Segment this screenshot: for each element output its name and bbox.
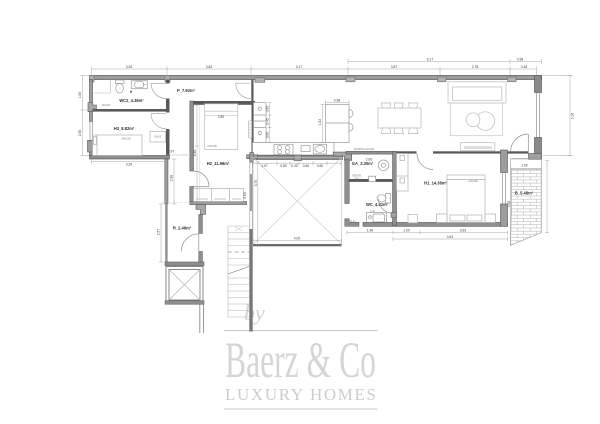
svg-text:50x50: 50x50 <box>154 136 161 139</box>
svg-text:0.48: 0.48 <box>521 65 528 69</box>
svg-text:1.50: 1.50 <box>78 92 82 99</box>
svg-text:H3_8.82m²: H3_8.82m² <box>114 126 135 131</box>
svg-text:0.60: 0.60 <box>303 164 310 168</box>
svg-text:0.98: 0.98 <box>517 58 524 62</box>
svg-text:1.62: 1.62 <box>318 119 322 126</box>
svg-text:H1_14.36m²: H1_14.36m² <box>424 181 447 186</box>
svg-text:3.26: 3.26 <box>126 65 133 69</box>
svg-text:4.50: 4.50 <box>193 150 197 157</box>
svg-text:0.90: 0.90 <box>354 178 359 181</box>
svg-text:H2_11.96m²: H2_11.96m² <box>207 161 230 166</box>
svg-text:WC2_4.36m²: WC2_4.36m² <box>119 98 144 103</box>
svg-text:2.57: 2.57 <box>157 229 161 236</box>
svg-text:2.80: 2.80 <box>218 115 225 119</box>
svg-text:4.17: 4.17 <box>296 65 303 69</box>
svg-text:0.40: 0.40 <box>291 164 298 168</box>
svg-text:3.16: 3.16 <box>571 113 575 120</box>
svg-text:0.60: 0.60 <box>317 164 324 168</box>
svg-text:Baerz & Co: Baerz & Co <box>225 333 376 389</box>
svg-text:140x190: 140x190 <box>121 137 131 140</box>
svg-text:R_2.46m²: R_2.46m² <box>173 226 192 231</box>
svg-text:1.50: 1.50 <box>521 164 528 168</box>
svg-text:1.07: 1.07 <box>261 164 268 168</box>
svg-text:2.78: 2.78 <box>472 65 479 69</box>
svg-text:0.98: 0.98 <box>334 98 341 102</box>
svg-text:PUERTA LACADA: PUERTA LACADA <box>354 148 375 151</box>
svg-text:0.45: 0.45 <box>266 118 270 125</box>
svg-text:6.17: 6.17 <box>427 58 434 62</box>
svg-text:4.00: 4.00 <box>294 237 301 241</box>
svg-text:3.63: 3.63 <box>460 228 467 232</box>
svg-text:3.63: 3.63 <box>206 65 213 69</box>
svg-text:2.98: 2.98 <box>170 175 174 182</box>
svg-text:1.96: 1.96 <box>367 228 374 232</box>
svg-text:0.60: 0.60 <box>243 192 247 199</box>
svg-text:1.40: 1.40 <box>370 210 375 213</box>
svg-text:2.60: 2.60 <box>366 158 373 162</box>
svg-text:4.50: 4.50 <box>507 201 511 208</box>
svg-text:4.63: 4.63 <box>447 235 454 239</box>
svg-text:P_7.92m²: P_7.92m² <box>177 88 196 93</box>
svg-text:90x120: 90x120 <box>102 104 111 107</box>
svg-text:5.70: 5.70 <box>254 180 258 187</box>
svg-text:3.87: 3.87 <box>391 65 398 69</box>
svg-text:2.50: 2.50 <box>78 130 82 137</box>
svg-text:GA_2.30m²: GA_2.30m² <box>352 161 374 166</box>
svg-text:0.97: 0.97 <box>168 149 175 153</box>
svg-text:140x190: 140x190 <box>468 180 478 183</box>
svg-text:0.60: 0.60 <box>266 132 270 139</box>
svg-text:0.80: 0.80 <box>280 164 287 168</box>
svg-text:7s 3c: 7s 3c <box>350 220 357 223</box>
svg-text:0.60: 0.60 <box>266 106 270 113</box>
svg-text:140x190: 140x190 <box>207 145 217 148</box>
svg-text:B_5.48m²: B_5.48m² <box>515 191 534 196</box>
svg-text:3.26: 3.26 <box>126 162 133 166</box>
svg-text:1.00: 1.00 <box>403 228 410 232</box>
